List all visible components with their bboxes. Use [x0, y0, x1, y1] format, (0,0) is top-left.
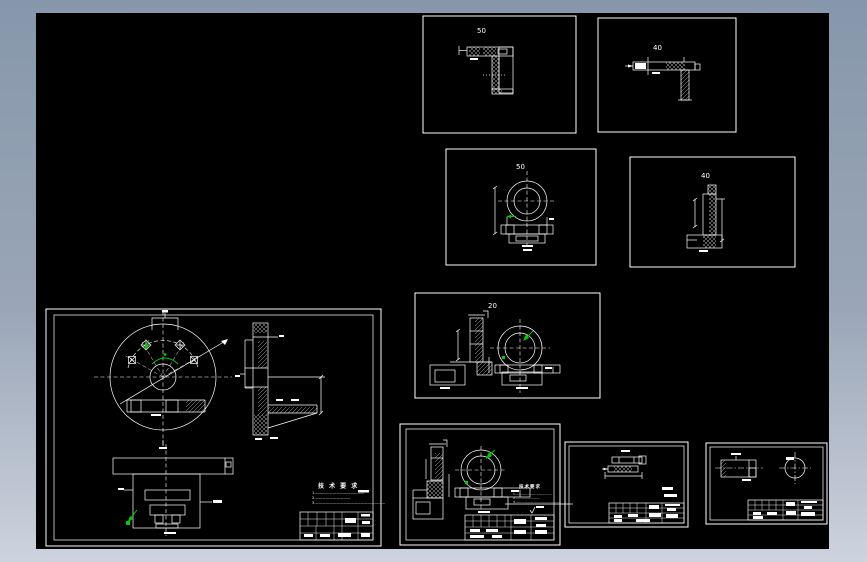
model-space-canvas[interactable]: 50 40 50 40 20 技 术 要 求 1.—————————————— … [36, 13, 829, 549]
roughness-symbol [530, 506, 544, 513]
viewport-stud-detail-sheet[interactable] [565, 442, 688, 527]
viewport-bracket-side-40[interactable] [630, 157, 795, 267]
detail-label-50-front[interactable]: 50 [516, 164, 525, 171]
stud-drawing[interactable] [602, 450, 646, 479]
sub-sheet-tech-requirement-line: 3.——————————————— [513, 501, 561, 504]
main-sheet-tech-requirement-line: 2.—————————— [312, 497, 350, 501]
detail-label-20[interactable]: 20 [488, 303, 497, 310]
pin-end-view[interactable] [779, 452, 811, 484]
detail-label-40-top-right[interactable]: 40 [653, 45, 662, 52]
green-leader-arrow-sheet[interactable] [465, 450, 495, 484]
viewport-bracket-two-view-20[interactable] [415, 293, 600, 398]
cad-drawing-layer [36, 13, 829, 549]
bracket-front-drawing[interactable] [493, 171, 556, 251]
base-bottom-view[interactable] [113, 444, 233, 536]
green-angle-dimension[interactable] [144, 340, 178, 364]
viewport-pin-detail-sheet[interactable] [706, 443, 827, 524]
viewport-l-section-detail-50[interactable] [423, 16, 576, 133]
viewport-main-assembly-sheet[interactable] [46, 309, 381, 546]
pin-title-block [748, 500, 823, 520]
l-section-mirrored-drawing[interactable] [625, 57, 700, 100]
main-sheet-tech-requirement-line: 3.———————————————————— [312, 502, 385, 506]
bracket-section-view[interactable] [413, 440, 447, 519]
front-ring-view[interactable] [489, 319, 560, 393]
flange-front-view[interactable] [94, 310, 232, 449]
main-sheet-tech-requirements-heading: 技 术 要 求 [318, 484, 359, 490]
sub-sheet-tech-requirements-heading: 技术要求 [519, 486, 541, 491]
stud-notes [662, 487, 677, 497]
viewport-l-section-detail-40[interactable] [598, 18, 736, 132]
pin-drawing[interactable] [715, 453, 763, 481]
detail-label-40-side[interactable]: 40 [701, 173, 710, 180]
l-section-drawing[interactable] [459, 46, 513, 94]
stud-title-block [609, 503, 684, 523]
green-leader-arrow-bottom[interactable] [126, 510, 137, 525]
green-dimension-mark[interactable] [506, 215, 516, 218]
main-sheet-tech-requirement-line: 1.—————————————— [312, 492, 364, 496]
side-section-view[interactable] [430, 311, 492, 389]
cad-workspace: { "workspace": { "colors": { "paper_fram… [0, 0, 867, 562]
detail-label-50-top-left[interactable]: 50 [477, 28, 486, 35]
bracket-side-drawing[interactable] [687, 185, 725, 252]
sub-title-block [465, 515, 554, 540]
flange-section-view[interactable] [235, 323, 325, 440]
